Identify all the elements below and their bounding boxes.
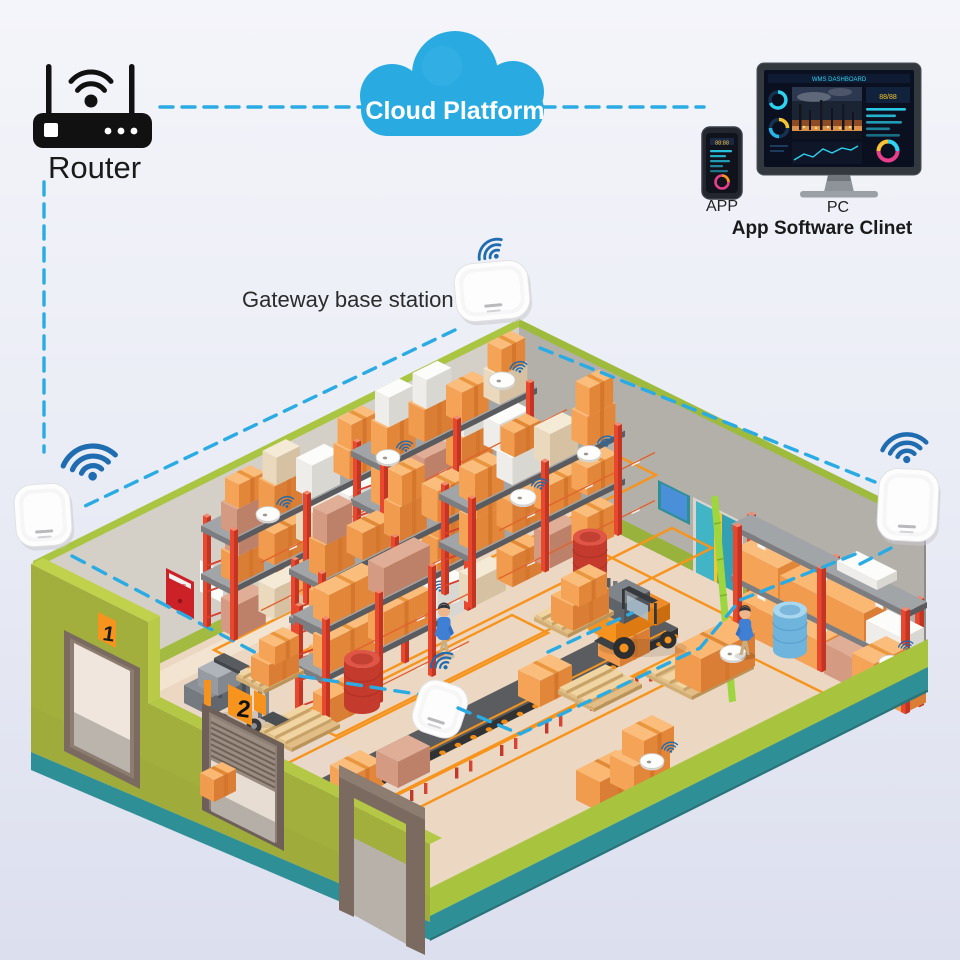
svg-text:88/88: 88/88 <box>879 94 897 101</box>
svg-text:88:88: 88:88 <box>715 141 729 147</box>
svg-text:APP: APP <box>706 198 738 215</box>
svg-text:PC: PC <box>827 199 849 216</box>
svg-text:Cloud Platform: Cloud Platform <box>365 97 544 125</box>
svg-text:Router: Router <box>48 150 141 185</box>
svg-text:WMS DASHBOARD: WMS DASHBOARD <box>812 77 867 83</box>
svg-text:Gateway base station: Gateway base station <box>242 287 454 312</box>
svg-text:App Software Clinet: App Software Clinet <box>732 218 913 239</box>
